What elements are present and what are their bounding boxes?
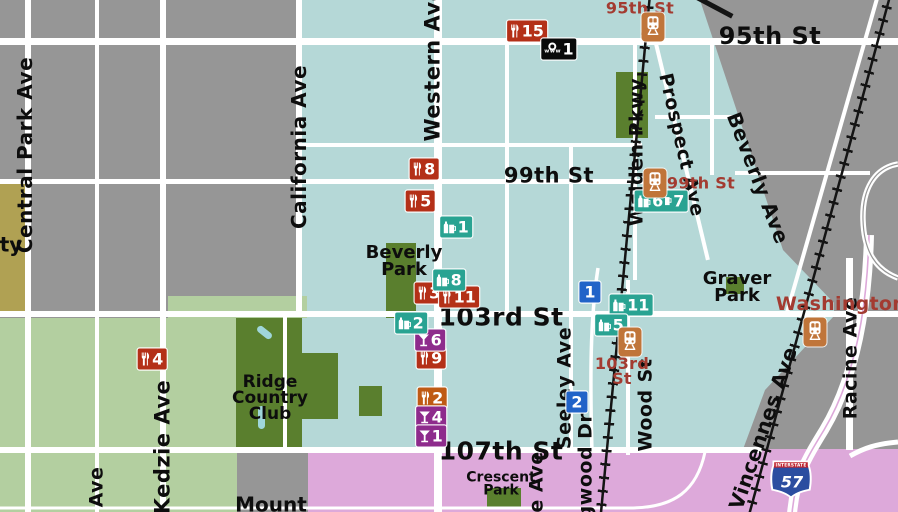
station-label-station-103rd: 103rdSt xyxy=(595,356,649,386)
marker-number: 2 xyxy=(571,394,582,410)
train-icon xyxy=(646,15,661,39)
label-line: St xyxy=(595,371,649,386)
region-golf-green-main xyxy=(0,318,237,512)
marker-number: 6 xyxy=(431,332,442,348)
ramp-loop xyxy=(863,164,898,278)
label-line: Park xyxy=(703,287,772,304)
label-line: 99th St xyxy=(667,175,735,190)
marker-cafe-2[interactable]: 2 xyxy=(418,388,447,409)
marker-number: 2 xyxy=(413,315,424,331)
train-icon xyxy=(648,171,663,195)
street-label-103rd-st: 103rd St xyxy=(438,305,563,330)
webcam-icon: www xyxy=(544,43,561,56)
marker-number: 11 xyxy=(627,297,649,313)
train-icon xyxy=(808,320,823,344)
marker-pub-11[interactable]: 11 xyxy=(610,295,653,316)
street-label-seeley-ave: Seeley Ave xyxy=(556,327,575,449)
label-line: Washington xyxy=(776,295,898,313)
marker-restaurant-4[interactable]: 4 xyxy=(138,349,167,370)
station-label-station-99th: 99th St xyxy=(667,175,735,190)
street-label-california-ave: California Ave xyxy=(289,65,309,229)
label-line: Park xyxy=(366,261,443,278)
place-label-crescent-park: CrescentPark xyxy=(466,472,535,499)
marker-number: 7 xyxy=(673,193,684,209)
label-line: ty xyxy=(0,236,22,255)
station-icon-95th[interactable] xyxy=(642,13,665,42)
marker-number: 1 xyxy=(458,219,469,235)
interstate-57-shield: INTERSTATE 57 xyxy=(768,459,814,503)
marker-pub-8[interactable]: 8 xyxy=(433,270,465,291)
marker-number: 1 xyxy=(584,284,595,300)
marker-number: 9 xyxy=(431,350,442,366)
station-icon-103rd[interactable] xyxy=(619,328,642,357)
marker-number: 8 xyxy=(424,161,435,177)
marker-restaurant-8[interactable]: 8 xyxy=(410,159,439,180)
marker-number: 1 xyxy=(563,41,574,57)
marker-number: 2 xyxy=(432,390,443,406)
station-icon-washington[interactable] xyxy=(804,318,827,347)
marker-number: 4 xyxy=(152,351,163,367)
place-label-beverly-park: BeverlyPark xyxy=(366,244,443,278)
marker-number: 4 xyxy=(432,409,443,425)
marker-internet-1[interactable]: www1 xyxy=(541,39,576,60)
marker-poi-2[interactable]: 2 xyxy=(566,392,587,413)
marker-restaurant-5[interactable]: 5 xyxy=(406,191,435,212)
marker-number: 11 xyxy=(454,289,476,305)
marker-pub-1[interactable]: 1 xyxy=(440,217,472,238)
label-line: Mount xyxy=(235,496,307,512)
marker-number: 8 xyxy=(451,272,462,288)
station-label-station-washington: Washington xyxy=(776,295,898,313)
green-block-small xyxy=(359,386,382,416)
street-label-99th-st: 99th St xyxy=(504,166,594,187)
map-canvas[interactable]: 95th St99th St103rd St107th StCentral Pa… xyxy=(0,0,898,512)
label-line: Club xyxy=(232,406,308,422)
street-label-central-park-ave: Central Park Ave xyxy=(15,57,35,253)
ramp-loop-median xyxy=(863,164,898,278)
marker-bar-1[interactable]: 1 xyxy=(416,426,446,447)
street-label-racine-ave: Racine Ave xyxy=(842,297,861,420)
road-prospect-north xyxy=(710,42,714,175)
road-unnamed-ave xyxy=(95,0,99,512)
street-label-longwood-dr-partial: gwood Dr xyxy=(577,413,596,512)
interstate-band-text: INTERSTATE xyxy=(776,462,807,468)
marker-number: 1 xyxy=(432,428,443,444)
street-label-ave-partial-west: Ave xyxy=(88,467,107,508)
place-label-ridge-country-club: RidgeCountryClub xyxy=(232,374,308,422)
road-97th-st xyxy=(300,143,642,147)
station-icon-99th[interactable] xyxy=(644,169,667,198)
place-label-graver-park: GraverPark xyxy=(703,270,772,304)
street-label-kedzie-ave: Kedzie Ave xyxy=(153,380,174,512)
www-label: www xyxy=(544,50,561,56)
marker-bar-4[interactable]: 4 xyxy=(416,407,446,428)
street-label-95th-st: 95th St xyxy=(719,24,822,48)
marker-pub-2[interactable]: 2 xyxy=(395,313,427,334)
marker-poi-1[interactable]: 1 xyxy=(579,282,600,303)
marker-number: 5 xyxy=(420,193,431,209)
street-label-western-ave: Western Ave xyxy=(423,0,444,142)
place-label-ty-partial: ty xyxy=(0,236,22,255)
place-label-mount-partial: Mount xyxy=(235,496,307,512)
train-icon xyxy=(623,330,638,354)
interstate-number: 57 xyxy=(781,473,804,492)
label-line: Park xyxy=(466,485,535,498)
marker-number: 15 xyxy=(522,23,544,39)
marker-restaurant-9[interactable]: 9 xyxy=(417,348,446,369)
